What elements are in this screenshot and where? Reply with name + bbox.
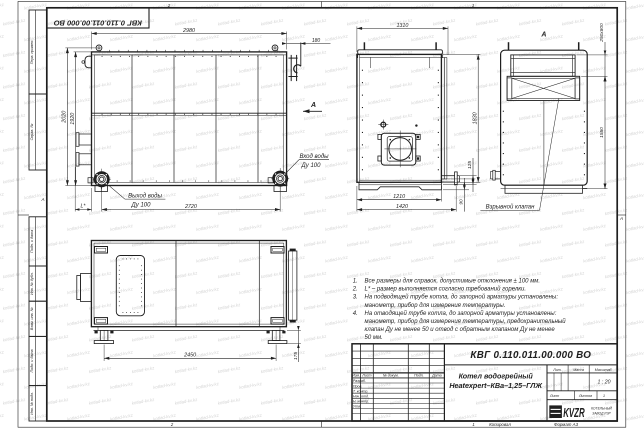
svg-text:ЗАВОД РЗР: ЗАВОД РЗР (592, 412, 611, 416)
svg-text:Выход воды: Выход воды (128, 193, 162, 199)
svg-text:Инв. № дубл.: Инв. № дубл. (30, 272, 34, 295)
svg-text:Лист: Лист (361, 374, 371, 378)
svg-text:А: А (619, 216, 623, 221)
svg-text:Котел водогрейный: Котел водогрейный (459, 372, 534, 381)
svg-text:1310: 1310 (396, 23, 408, 29)
svg-text:клапан Ду не менее 50 и отвод: клапан Ду не менее 50 и отвод с обратным… (365, 327, 556, 333)
svg-text:Т. контр.: Т. контр. (353, 389, 369, 393)
svg-text:1: 1 (603, 394, 605, 398)
svg-text:Копировал: Копировал (489, 422, 511, 427)
svg-text:№ докум.: № докум. (383, 374, 399, 378)
svg-text:Утв.: Утв. (353, 405, 361, 409)
svg-text:4.: 4. (353, 311, 358, 317)
svg-text:1210: 1210 (393, 194, 405, 200)
svg-text:Подп. и дата: Подп. и дата (30, 230, 34, 253)
svg-text:KVZR: KVZR (563, 405, 585, 420)
svg-text:1: 1 (472, 3, 474, 8)
svg-text:2720: 2720 (184, 204, 197, 210)
svg-text:2.: 2. (352, 287, 358, 293)
svg-text:1 : 20: 1 : 20 (598, 380, 611, 386)
svg-text:На подводящей трубе котла, до: На подводящей трубе котла, до запорной а… (365, 294, 559, 301)
svg-text:Дата: Дата (431, 374, 441, 378)
svg-text:Разраб.: Разраб. (353, 379, 366, 383)
svg-text:А: А (540, 32, 546, 39)
svg-text:250x800: 250x800 (599, 23, 605, 43)
svg-text:Лит.: Лит. (552, 368, 561, 372)
svg-text:50 мм.: 50 мм. (365, 335, 383, 341)
svg-text:2450: 2450 (183, 353, 196, 359)
svg-text:манометр, прибор для измерения: манометр, прибор для измерения температу… (365, 303, 506, 309)
svg-text:Листов: Листов (578, 394, 592, 398)
svg-text:Пров.: Пров. (353, 384, 362, 388)
svg-text:Нач. отд.: Нач. отд. (353, 395, 369, 399)
svg-text:КОТЕЛЬНЫЙ: КОТЕЛЬНЫЙ (591, 407, 612, 411)
svg-text:175: 175 (293, 352, 299, 360)
svg-text:КВГ 0.110.011.00.000 ВО: КВГ 0.110.011.00.000 ВО (54, 18, 142, 27)
svg-text:КВГ 0.110.011.00.000 ВО: КВГ 0.110.011.00.000 ВО (470, 350, 591, 361)
svg-text:Масса: Масса (573, 368, 584, 372)
svg-text:Взам. инв. №: Взам. инв. № (30, 307, 34, 330)
svg-text:90: 90 (458, 199, 464, 205)
svg-text:Взрывной клапан: Взрывной клапан (486, 203, 535, 210)
svg-text:Лист: Лист (549, 394, 559, 398)
svg-text:180: 180 (312, 38, 321, 44)
svg-text:2020: 2020 (62, 111, 68, 124)
svg-text:Все размеры для справок, допус: Все размеры для справок, допустимые откл… (365, 279, 541, 285)
svg-text:Изм.: Изм. (352, 374, 360, 378)
svg-text:Ду 100: Ду 100 (301, 163, 322, 169)
svg-text:манометр, прибор для измерения: манометр, прибор для измерения температу… (365, 318, 567, 325)
svg-text:Справ. №: Справ. № (30, 124, 34, 141)
svg-text:1550: 1550 (599, 127, 605, 138)
svg-text:А: А (40, 197, 44, 202)
svg-text:Heatexpert–КВа–1,25–ГЛЖ: Heatexpert–КВа–1,25–ГЛЖ (449, 381, 542, 390)
svg-text:Формат А3: Формат А3 (554, 422, 579, 427)
svg-text:На отводящей трубе котла, до з: На отводящей трубе котла, до запорной ар… (365, 310, 557, 317)
svg-text:Перв. примен.: Перв. примен. (30, 40, 34, 65)
svg-text:Подп. и дата: Подп. и дата (30, 349, 34, 372)
svg-text:Ду 100: Ду 100 (131, 202, 152, 208)
svg-text:1: 1 (472, 422, 474, 427)
svg-text:Инв. № подл.: Инв. № подл. (30, 392, 34, 415)
svg-text:L* – размер выполняется соглас: L* – размер выполняется согласно требова… (365, 286, 527, 293)
svg-text:3.: 3. (353, 295, 358, 301)
svg-text:Подп.: Подп. (414, 374, 424, 378)
svg-text:1420: 1420 (396, 204, 408, 210)
svg-text:Н. контр.: Н. контр. (353, 400, 369, 404)
svg-text:А: А (310, 102, 316, 109)
svg-text:1920: 1920 (70, 113, 76, 125)
svg-text:Вход воды: Вход воды (299, 154, 329, 160)
svg-text:Масштаб: Масштаб (595, 368, 613, 372)
svg-text:1.: 1. (353, 279, 358, 285)
svg-text:1830: 1830 (472, 112, 478, 124)
svg-text:125: 125 (467, 161, 473, 169)
svg-text:2980: 2980 (182, 28, 195, 34)
